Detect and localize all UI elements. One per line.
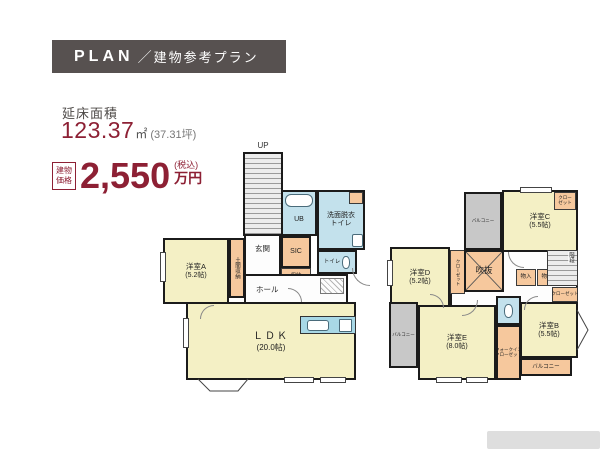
stairs-2f-label: 階段: [568, 252, 574, 263]
balcony-top: バルコニー: [464, 192, 502, 250]
window: [183, 318, 189, 348]
room-ub-label: UB: [294, 216, 304, 224]
closet-room-d: クローゼット: [450, 250, 465, 294]
floor-area-value: 123.37: [61, 117, 134, 144]
window: [387, 260, 393, 286]
price-label-box: 建物 価格: [52, 162, 76, 190]
room-e: 洋室E (8.0帖): [418, 305, 496, 380]
floorplan-page: PLAN ／ 建物参考プラン 延床面積 123.37 ㎡ (37.31坪) 建物…: [0, 0, 600, 449]
room-a-size: (5.2帖): [185, 272, 206, 280]
room-b-name: 洋室B: [539, 321, 559, 331]
room-e-size: (8.0帖): [446, 343, 467, 351]
room-c: 洋室C (5.5帖) クロー ゼット: [502, 190, 578, 252]
genkan-label: 玄関: [255, 244, 270, 254]
room-b-size: (5.5帖): [538, 331, 559, 339]
room-b: 洋室B (5.5帖): [520, 302, 578, 358]
ldk-size: (20.0帖): [257, 343, 286, 353]
storage-monoiri-1: 物入: [516, 269, 536, 286]
washroom-label-line2: トイレ: [331, 220, 352, 228]
window: [284, 377, 314, 383]
void-label: 吹抜: [475, 265, 492, 276]
closet-b-label: クローゼット: [552, 292, 579, 297]
balcony-left: バルコニー: [389, 302, 418, 368]
kitchen-sink-icon: [307, 320, 329, 331]
price-label-line1: 建物: [56, 166, 72, 176]
closet-d-label: クローゼット: [455, 259, 460, 286]
room-c-size: (5.5帖): [529, 222, 550, 230]
bay-window-icon: [196, 378, 250, 393]
balcony-bottom-label: バルコニー: [532, 364, 559, 370]
price-unit: 万円: [174, 171, 202, 186]
linen-storage: [349, 192, 363, 204]
closet-c-label2: ゼット: [558, 201, 572, 206]
doma-storage-label: 土間収納: [234, 257, 240, 279]
plan-title-en: PLAN: [74, 48, 134, 66]
window: [160, 252, 166, 282]
plan-title-ja: 建物参考プラン: [154, 47, 259, 66]
price-block: 建物 価格 2,550 (税込) 万円: [52, 158, 202, 194]
floor-area-unit: ㎡: [135, 125, 147, 142]
room-c-name: 洋室C: [530, 212, 550, 222]
balcony-top-label: バルコニー: [472, 219, 494, 224]
window: [520, 187, 552, 193]
room-d-size: (5.2帖): [409, 278, 430, 286]
closet-room-b: クローゼット: [552, 287, 578, 302]
plan-title-separator: ／: [138, 47, 152, 67]
void-fukinuke: 吹抜: [464, 250, 504, 292]
room-toilet-1f: トイレ: [317, 250, 357, 274]
room-d-name: 洋室D: [410, 268, 430, 278]
walk-in-closet: ウォークイン クローゼット: [496, 325, 521, 380]
floor-area-value-row: 123.37 ㎡ (37.31坪): [61, 117, 196, 144]
washroom-label-line1: 洗面脱衣: [327, 212, 355, 220]
toilet-icon: [504, 304, 513, 318]
toilet-icon: [342, 256, 350, 269]
window: [320, 377, 346, 383]
room-toilet-2f: [496, 296, 521, 325]
floor-area-tsubo: (37.31坪): [150, 126, 196, 142]
stairs-up-label: UP: [243, 141, 283, 150]
toilet-1f-label: トイレ: [324, 259, 341, 265]
room-a-name: 洋室A: [186, 262, 206, 272]
entrance-door-arc: [352, 268, 370, 286]
kitchen-stove-icon: [339, 319, 352, 332]
price-label-line2: 価格: [56, 176, 72, 186]
ldk-name: ＬＤＫ: [253, 330, 289, 343]
monoiri-1-label: 物入: [520, 274, 531, 280]
stairs-1f: [243, 152, 283, 236]
washbasin-icon: [352, 234, 363, 247]
price-amount: 2,550: [80, 158, 170, 194]
bay-window-icon: [576, 308, 590, 352]
window: [466, 377, 488, 383]
balcony-left-label: バルコニー: [392, 333, 414, 338]
room-sic: SIC: [281, 236, 311, 268]
kitchen-counter: [300, 316, 356, 334]
room-a: 洋室A (5.2帖): [163, 238, 229, 304]
understair-storage: [320, 278, 344, 294]
plan-header: PLAN ／ 建物参考プラン: [52, 40, 286, 73]
window: [436, 377, 462, 383]
watermark-bar: [487, 431, 600, 449]
hall-1f-label: ホール: [256, 285, 279, 295]
room-doma-storage: 土間収納: [229, 238, 245, 298]
wic-label-line2: クローゼット: [495, 353, 522, 358]
closet-room-c: クロー ゼット: [554, 192, 576, 210]
room-d: 洋室D (5.2帖): [390, 247, 450, 307]
bathtub-icon: [285, 194, 313, 207]
balcony-bottom: バルコニー: [520, 358, 572, 376]
sic-label: SIC: [290, 248, 302, 256]
room-e-name: 洋室E: [447, 333, 467, 343]
